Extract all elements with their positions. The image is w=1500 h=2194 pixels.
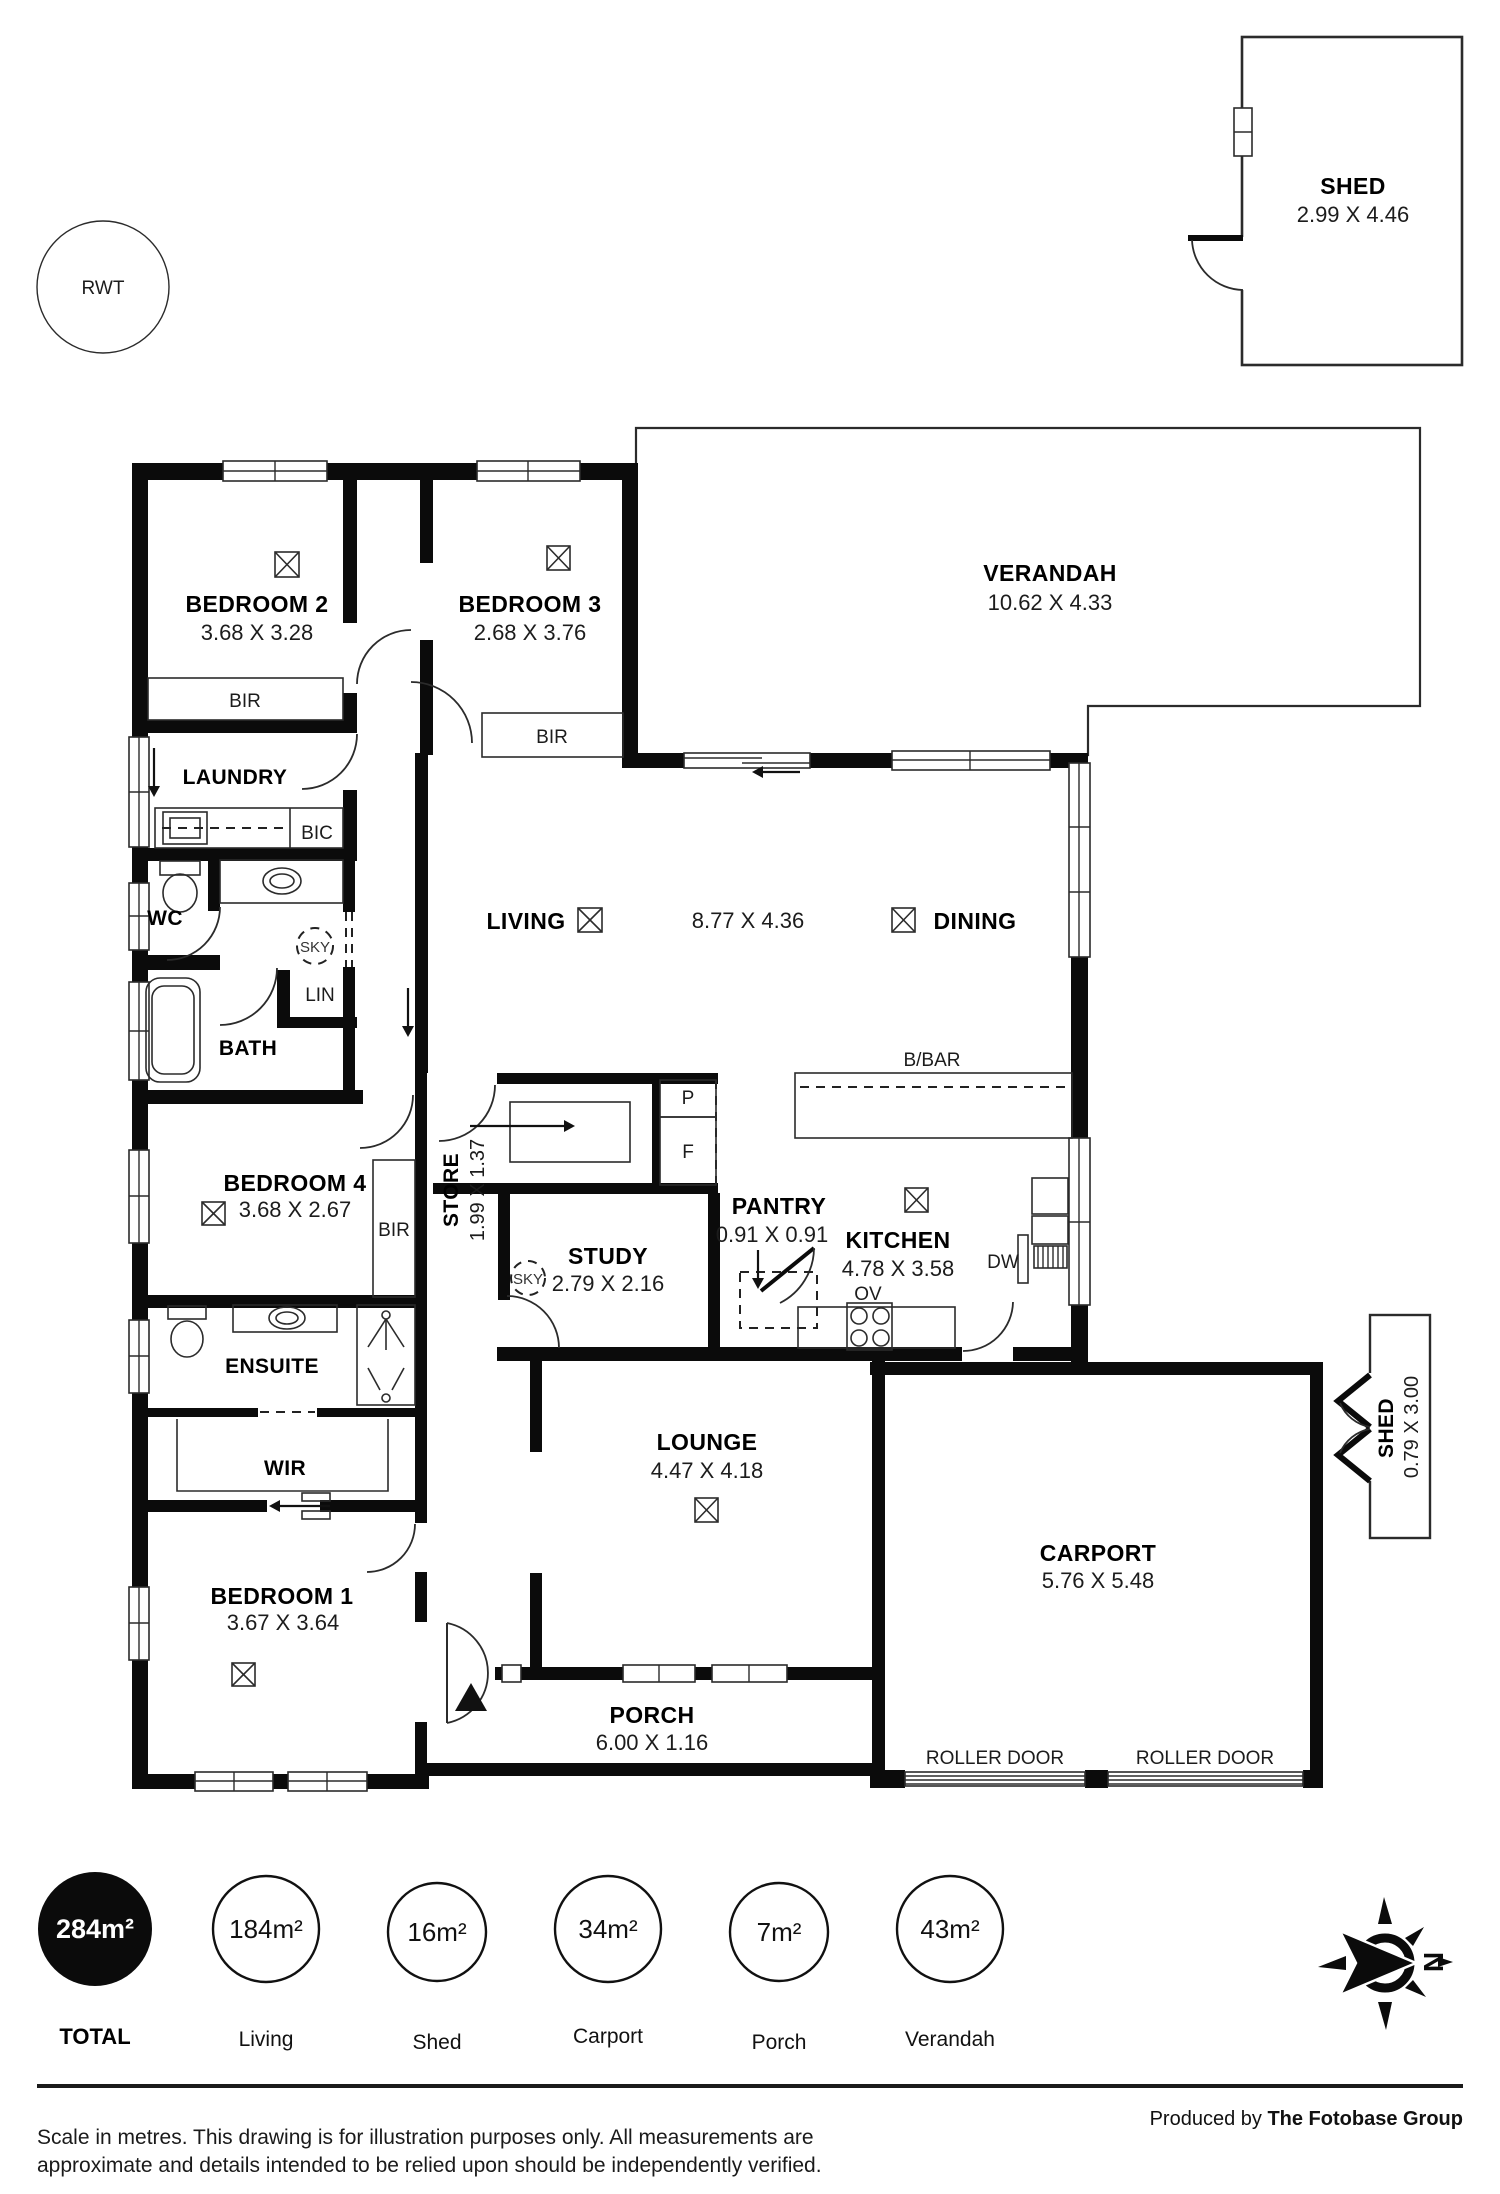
legend-verandah: 43m² Verandah <box>897 1876 1003 2051</box>
legend-shed-label: Shed <box>412 2031 461 2054</box>
shed-side-label: SHED <box>1375 1398 1398 1458</box>
fan-bedroom4 <box>202 1202 225 1225</box>
p-label: P <box>682 1088 695 1109</box>
pantry-label: PANTRY <box>732 1193 826 1219</box>
compass: N <box>1318 1897 1453 2030</box>
shower <box>357 1305 415 1405</box>
rwt-label: RWT <box>82 278 125 299</box>
legend-total-value: 284m² <box>56 1914 134 1944</box>
roller-door-label-right: ROLLER DOOR <box>1136 1748 1274 1769</box>
dining-label: DINING <box>934 908 1017 934</box>
legend-shed: 16m² Shed <box>388 1883 486 2054</box>
bir-label-bed2: BIR <box>229 691 261 712</box>
pantry-dim: 0.91 X 0.91 <box>716 1222 829 1247</box>
carport-label: CARPORT <box>1040 1540 1157 1566</box>
fan-dining <box>892 908 915 932</box>
legend-carport-label: Carport <box>573 2025 643 2048</box>
f-label: F <box>682 1142 694 1163</box>
legend: 284m² TOTAL 184m² Living 16m² Shed 34m² … <box>38 1872 1003 2054</box>
sliding-door <box>684 753 810 768</box>
floor-plan-drawing: RWT SHED 2.99 X 4.46 VERANDAH 10.62 X 4.… <box>0 0 1500 2194</box>
legend-total: 284m² TOTAL <box>38 1872 152 2049</box>
bedroom4-dim: 3.68 X 2.67 <box>239 1197 352 1222</box>
bathtub <box>146 978 200 1082</box>
roller-door-label-left: ROLLER DOOR <box>926 1748 1064 1769</box>
lin-label: LIN <box>305 985 335 1006</box>
dw-label: DW <box>987 1252 1019 1273</box>
flow-arrows <box>148 748 800 1512</box>
shed-top: SHED 2.99 X 4.46 <box>1188 37 1462 365</box>
study-label: STUDY <box>568 1243 648 1269</box>
sky-label-study: SKY <box>513 1271 543 1288</box>
wc-toilet <box>160 861 200 912</box>
compass-north-label: N <box>1418 1952 1449 1972</box>
kitchen-label: KITCHEN <box>845 1227 950 1253</box>
porch-dim: 6.00 X 1.16 <box>596 1730 709 1755</box>
sky-label-hall: SKY <box>300 939 330 956</box>
verandah-label: VERANDAH <box>983 560 1117 586</box>
rainwater-tank: RWT <box>37 221 169 353</box>
verandah: VERANDAH 10.62 X 4.33 <box>636 428 1420 755</box>
ov-label: OV <box>854 1284 882 1305</box>
legend-verandah-value: 43m² <box>920 1914 980 1944</box>
produced-by: Produced by The Fotobase Group <box>1150 2108 1463 2131</box>
bedroom1-dim: 3.67 X 3.64 <box>227 1610 340 1635</box>
footer-divider <box>37 2084 1463 2088</box>
shed-top-dim: 2.99 X 4.46 <box>1297 202 1410 227</box>
study-dim: 2.79 X 2.16 <box>552 1271 665 1296</box>
lounge-dim: 4.47 X 4.18 <box>651 1458 764 1483</box>
kitchen-tall-units <box>1032 1178 1068 1268</box>
bath-vanity <box>220 860 343 903</box>
bedroom3-dim: 2.68 X 3.76 <box>474 620 587 645</box>
legend-shed-value: 16m² <box>407 1917 467 1947</box>
store-shelf <box>510 1102 630 1162</box>
bedroom2-label: BEDROOM 2 <box>186 591 329 617</box>
kitchen-dim: 4.78 X 3.58 <box>842 1256 955 1281</box>
shed-side-dim: 0.79 X 3.00 <box>1401 1376 1423 1478</box>
laundry-label: LAUNDRY <box>183 766 288 789</box>
legend-living-label: Living <box>239 2028 294 2051</box>
legend-carport-value: 34m² <box>578 1914 638 1944</box>
bir-label-bed4: BIR <box>378 1220 410 1241</box>
wc-label: WC <box>147 907 183 930</box>
wir-label: WIR <box>264 1457 306 1480</box>
fan-bedroom3 <box>547 546 570 570</box>
bic-label: BIC <box>301 823 333 844</box>
fan-lounge <box>695 1498 718 1522</box>
bath-label: BATH <box>219 1037 277 1060</box>
shed-top-label: SHED <box>1320 173 1386 199</box>
living-label: LIVING <box>486 908 565 934</box>
store-dim: 1.99 X 1.37 <box>467 1139 489 1241</box>
bir-label-bed3: BIR <box>536 727 568 748</box>
shed-side: SHED 0.79 X 3.00 <box>1338 1315 1430 1538</box>
legend-living-value: 184m² <box>229 1914 303 1944</box>
bbar-label: B/BAR <box>903 1050 960 1071</box>
ensuite-label: ENSUITE <box>225 1355 319 1378</box>
bedroom4-label: BEDROOM 4 <box>224 1170 367 1196</box>
floor-plan-page: RWT SHED 2.99 X 4.46 VERANDAH 10.62 X 4.… <box>0 0 1500 2194</box>
bedroom1-label: BEDROOM 1 <box>211 1583 354 1609</box>
disclaimer-line-1: Scale in metres. This drawing is for ill… <box>37 2126 814 2150</box>
bedroom3-label: BEDROOM 3 <box>459 591 602 617</box>
fan-kitchen <box>905 1188 928 1212</box>
disclaimer-line-2: approximate and details intended to be r… <box>37 2154 822 2178</box>
legend-living: 184m² Living <box>213 1876 319 2051</box>
ensuite-toilet <box>168 1306 206 1357</box>
produced-by-prefix: Produced by <box>1150 2108 1268 2130</box>
produced-by-brand: The Fotobase Group <box>1267 2108 1463 2130</box>
wir-shelf <box>177 1419 388 1491</box>
legend-total-label: TOTAL <box>59 2024 130 2049</box>
porch-label: PORCH <box>609 1702 694 1728</box>
ensuite-vanity <box>233 1305 337 1332</box>
living-dim: 8.77 X 4.36 <box>692 908 805 933</box>
legend-verandah-label: Verandah <box>905 2028 995 2051</box>
legend-porch-value: 7m² <box>757 1917 802 1947</box>
legend-porch: 7m² Porch <box>730 1883 828 2054</box>
bedroom2-dim: 3.68 X 3.28 <box>201 620 314 645</box>
verandah-dim: 10.62 X 4.33 <box>988 590 1113 615</box>
store-label: STORE <box>440 1153 463 1227</box>
carport-dim: 5.76 X 5.48 <box>1042 1568 1155 1593</box>
fan-living <box>578 908 602 932</box>
fan-bedroom2 <box>275 552 299 577</box>
ceiling-fans <box>202 546 928 1686</box>
legend-porch-label: Porch <box>752 2031 807 2054</box>
lounge-label: LOUNGE <box>657 1429 758 1455</box>
dishwasher <box>1018 1235 1028 1283</box>
stove-cooktop <box>847 1303 892 1350</box>
kitchen-bench <box>795 1073 1072 1348</box>
fan-bedroom1 <box>232 1663 255 1686</box>
legend-carport: 34m² Carport <box>555 1876 661 2048</box>
